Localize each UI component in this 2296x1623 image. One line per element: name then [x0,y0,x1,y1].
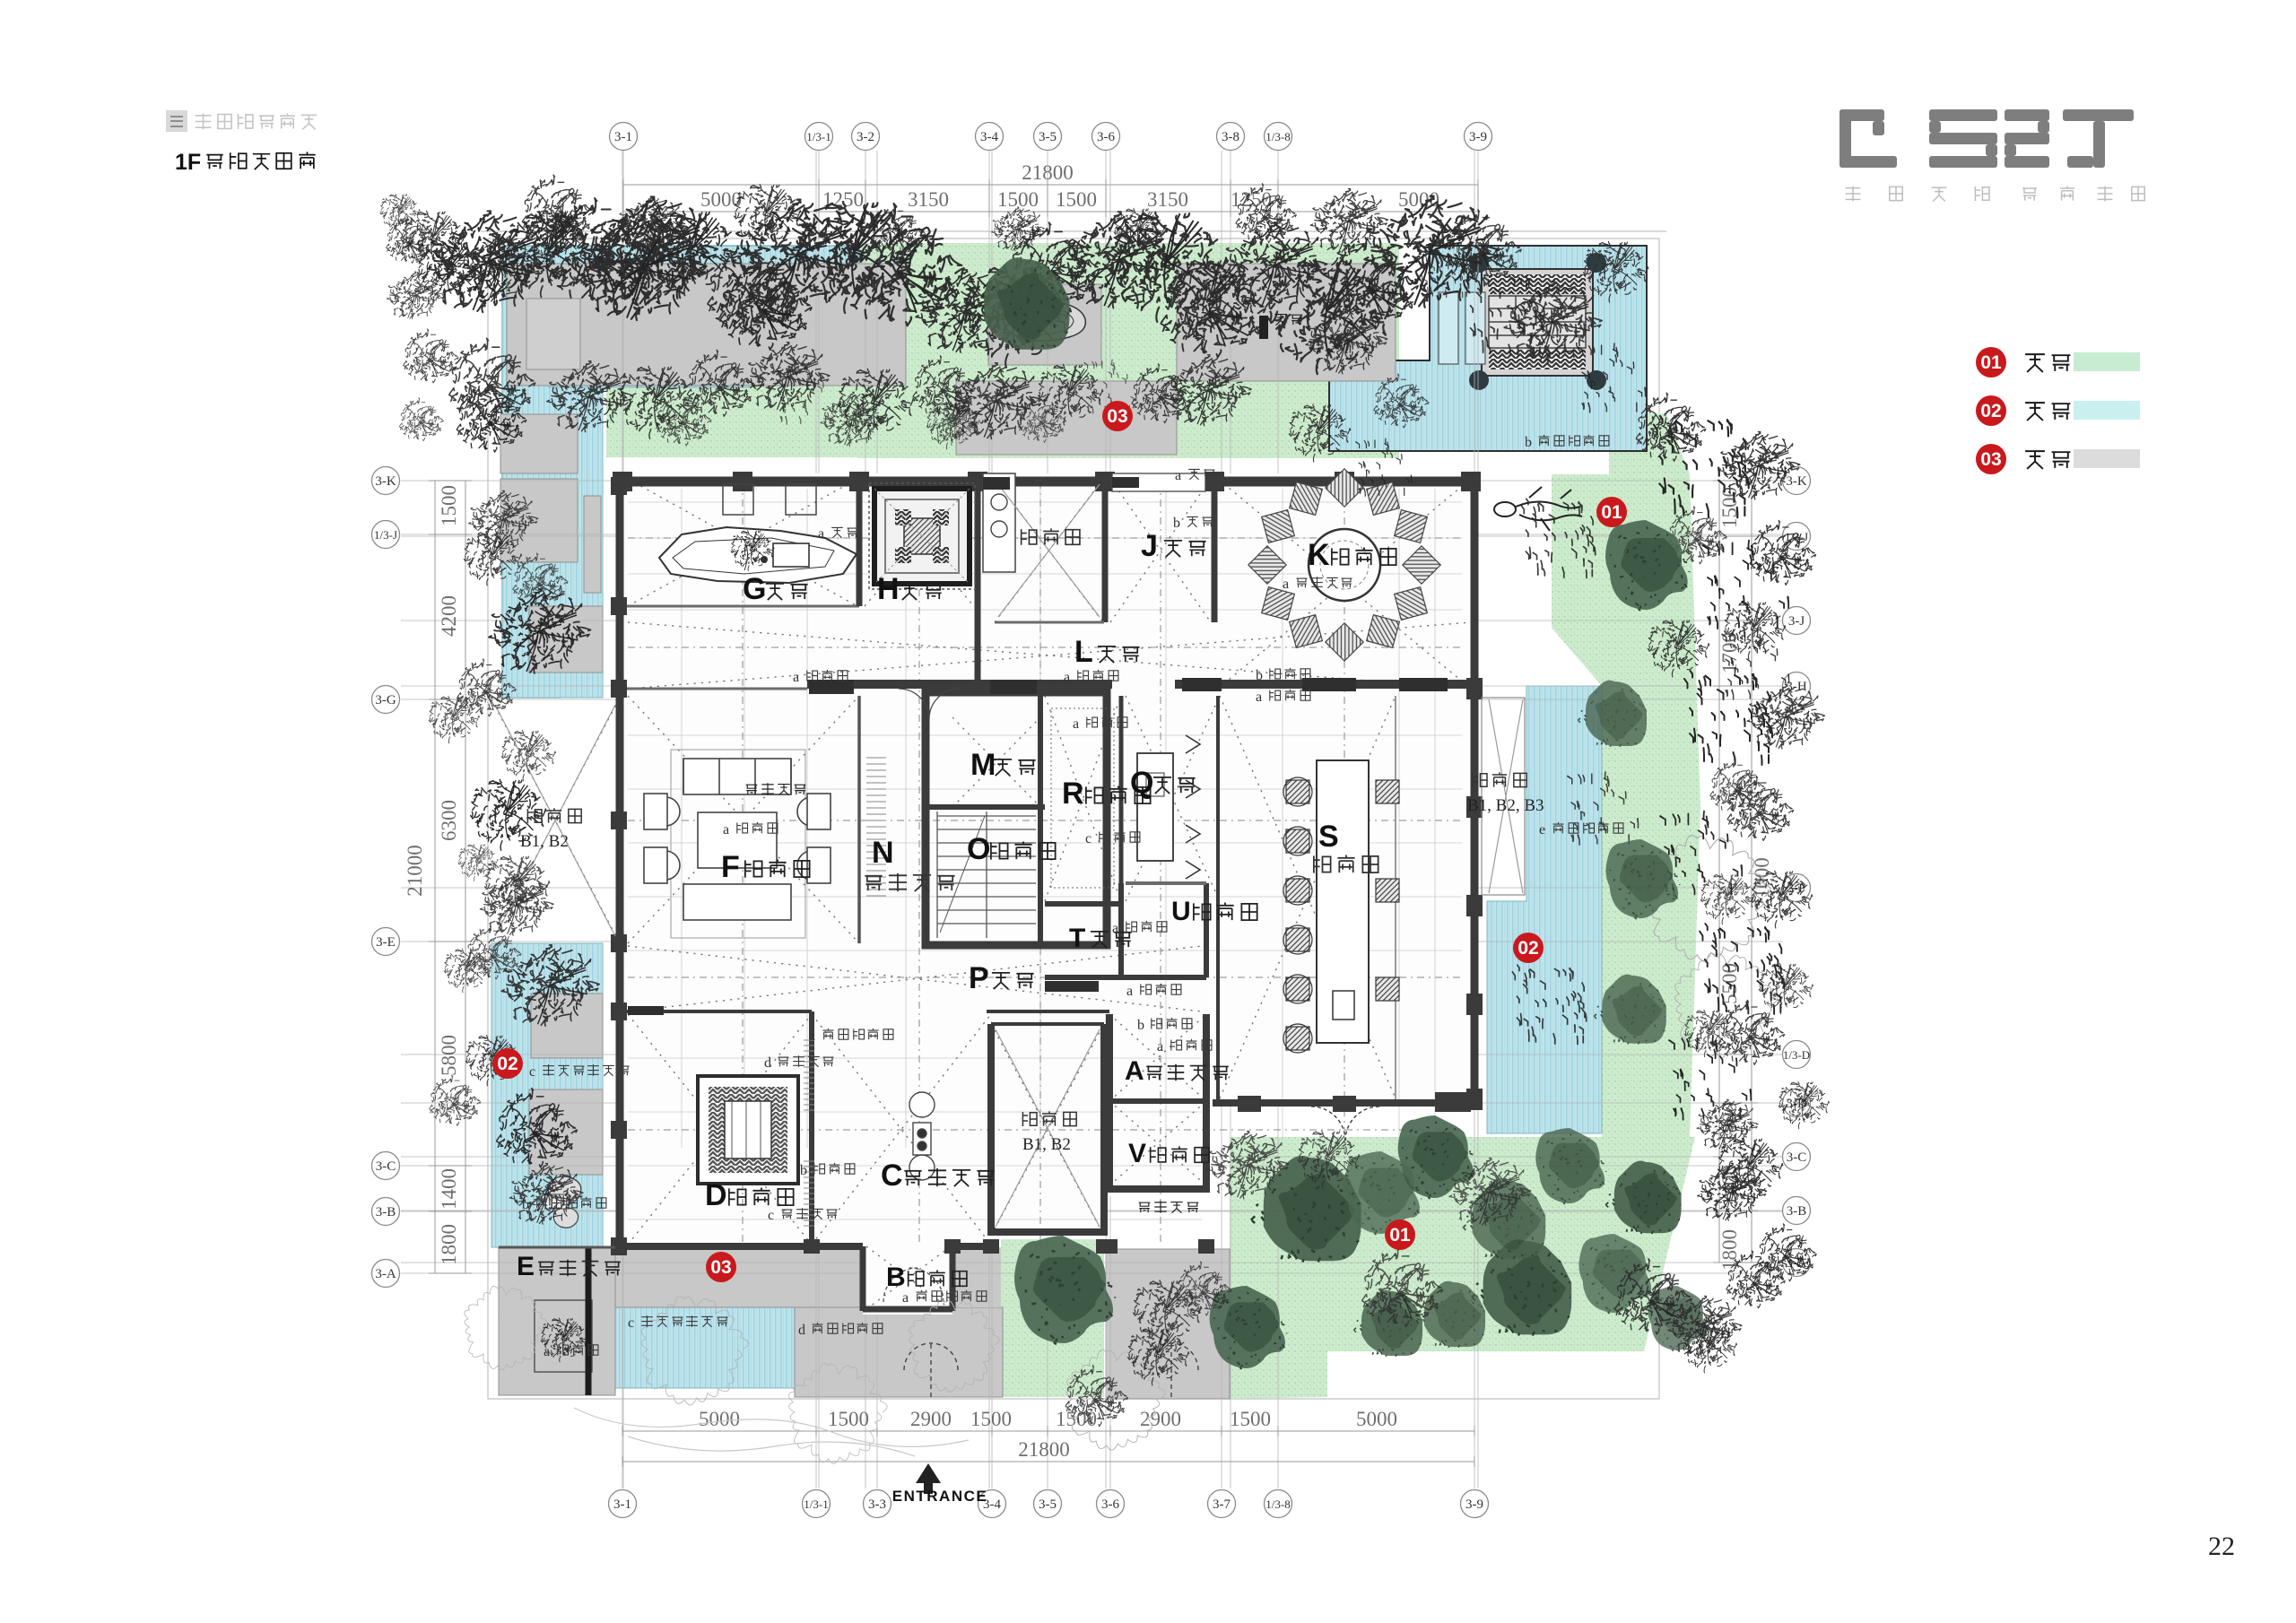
svg-text:c: c [529,1064,535,1080]
svg-text:1/3-1: 1/3-1 [804,1497,828,1511]
svg-text:a: a [1112,921,1118,936]
svg-text:R: R [1062,777,1084,811]
svg-text:V: V [1128,1139,1146,1168]
svg-text:a: a [1064,670,1070,685]
svg-text:c: c [768,1208,774,1223]
svg-text:a: a [544,1344,550,1359]
svg-text:3-3: 3-3 [868,1497,886,1512]
svg-text:P: P [969,961,989,995]
svg-text:3-A: 3-A [375,1267,396,1281]
svg-text:3-8: 3-8 [1222,130,1239,144]
svg-text:4200: 4200 [438,595,460,637]
svg-text:3-5: 3-5 [1039,130,1057,144]
svg-text:21800: 21800 [1018,1438,1070,1461]
svg-text:U: U [1171,897,1191,926]
svg-text:03: 03 [1980,449,2001,470]
svg-text:M: M [970,748,996,782]
svg-text:3-C: 3-C [1787,1150,1807,1165]
svg-text:a: a [793,670,799,685]
svg-text:a: a [818,526,824,542]
svg-text:02: 02 [1980,401,2001,421]
svg-text:1400: 1400 [438,1168,460,1210]
svg-text:3-4: 3-4 [980,130,998,144]
svg-text:02: 02 [497,1054,517,1074]
svg-text:Q: Q [1130,766,1153,800]
svg-text:ENTRANCE: ENTRANCE [892,1488,987,1505]
svg-text:3-7: 3-7 [1213,1497,1231,1512]
svg-text:b: b [522,1197,529,1212]
svg-text:1500: 1500 [438,485,460,526]
svg-text:3-K: 3-K [375,474,396,489]
svg-text:1F: 1F [175,150,201,175]
svg-text:T: T [1069,924,1085,953]
svg-text:B1, B2, B3: B1, B2, B3 [1467,796,1544,815]
svg-text:2900: 2900 [1140,1408,1181,1430]
svg-text:5000: 5000 [699,1408,740,1430]
svg-text:3-G: 3-G [375,693,396,707]
svg-text:a: a [1256,690,1262,705]
svg-text:1500: 1500 [828,1408,869,1430]
svg-text:b: b [1173,516,1180,531]
svg-text:21800: 21800 [1022,161,1074,184]
svg-text:2900: 2900 [910,1408,952,1430]
svg-text:3-B: 3-B [376,1205,396,1219]
svg-text:b: b [1256,668,1263,683]
svg-text:b: b [1137,1018,1144,1033]
svg-text:3-1: 3-1 [613,1497,631,1512]
svg-text:B1, B2: B1, B2 [520,832,569,851]
svg-text:a: a [1175,468,1181,483]
svg-text:1500: 1500 [1230,1408,1271,1430]
svg-text:K: K [1308,538,1330,572]
svg-text:3-K: 3-K [1786,474,1806,489]
svg-text:E: E [517,1252,535,1281]
svg-text:1500: 1500 [970,1408,1012,1430]
svg-text:b: b [800,1163,807,1178]
svg-text:03: 03 [710,1257,731,1278]
svg-text:02: 02 [1518,938,1538,959]
svg-text:c: c [628,1315,634,1331]
svg-text:3-E: 3-E [376,935,396,950]
svg-text:b: b [1525,435,1532,450]
svg-text:1/3-8: 1/3-8 [1265,1497,1290,1511]
svg-text:d: d [764,1055,771,1071]
svg-text:03: 03 [1107,406,1127,427]
svg-text:3-C: 3-C [376,1159,396,1174]
svg-text:N: N [872,836,894,870]
svg-text:a: a [902,1290,909,1306]
svg-text:C: C [881,1159,903,1193]
svg-text:3-B: 3-B [1787,1204,1807,1219]
svg-text:1/3-J: 1/3-J [374,528,397,542]
svg-text:3-2: 3-2 [857,130,874,144]
svg-text:1500: 1500 [1056,188,1097,211]
svg-text:3150: 3150 [1147,188,1188,211]
svg-text:B1, B2: B1, B2 [1022,1135,1071,1154]
svg-text:a: a [1073,716,1079,732]
svg-text:O: O [967,832,990,866]
svg-text:01: 01 [1389,1225,1411,1245]
svg-text:d: d [798,1323,805,1338]
svg-text:6300: 6300 [438,800,460,841]
svg-text:3150: 3150 [908,188,949,211]
svg-text:21000: 21000 [404,845,426,897]
svg-text:a: a [809,1028,815,1044]
svg-text:e: e [1539,822,1545,838]
svg-text:J: J [1141,529,1158,563]
svg-text:D: D [705,1178,727,1212]
svg-text:S: S [1318,820,1339,854]
svg-text:1800: 1800 [438,1224,460,1265]
svg-text:3-1: 3-1 [614,130,632,144]
svg-text:3-9: 3-9 [1465,1497,1483,1512]
svg-text:F: F [721,850,740,884]
svg-text:01: 01 [1601,502,1622,523]
svg-text:5800: 5800 [438,1035,460,1076]
svg-text:3-6: 3-6 [1101,1497,1119,1512]
svg-text:A: A [1125,1056,1144,1086]
svg-text:L: L [1074,635,1093,669]
svg-text:G: G [743,572,766,606]
svg-text:a: a [1157,1039,1163,1055]
svg-text:3-9: 3-9 [1469,130,1487,144]
svg-text:3-J: 3-J [1788,614,1805,629]
svg-text:1/3-D: 1/3-D [1783,1048,1810,1062]
svg-text:B: B [886,1263,906,1292]
svg-text:c: c [1085,831,1091,846]
svg-text:22: 22 [2208,1532,2235,1561]
svg-text:a: a [1126,984,1133,999]
svg-text:a: a [723,822,729,838]
svg-text:5000: 5000 [1356,1408,1397,1430]
svg-text:H: H [877,572,900,606]
svg-text:1/3-1: 1/3-1 [806,130,831,143]
svg-text:3-5: 3-5 [1039,1497,1057,1512]
svg-text:5000: 5000 [700,188,742,211]
svg-text:3-6: 3-6 [1097,130,1115,144]
svg-text:1/3-8: 1/3-8 [1265,130,1290,143]
svg-text:01: 01 [1980,352,2002,373]
svg-text:a: a [1283,577,1289,592]
